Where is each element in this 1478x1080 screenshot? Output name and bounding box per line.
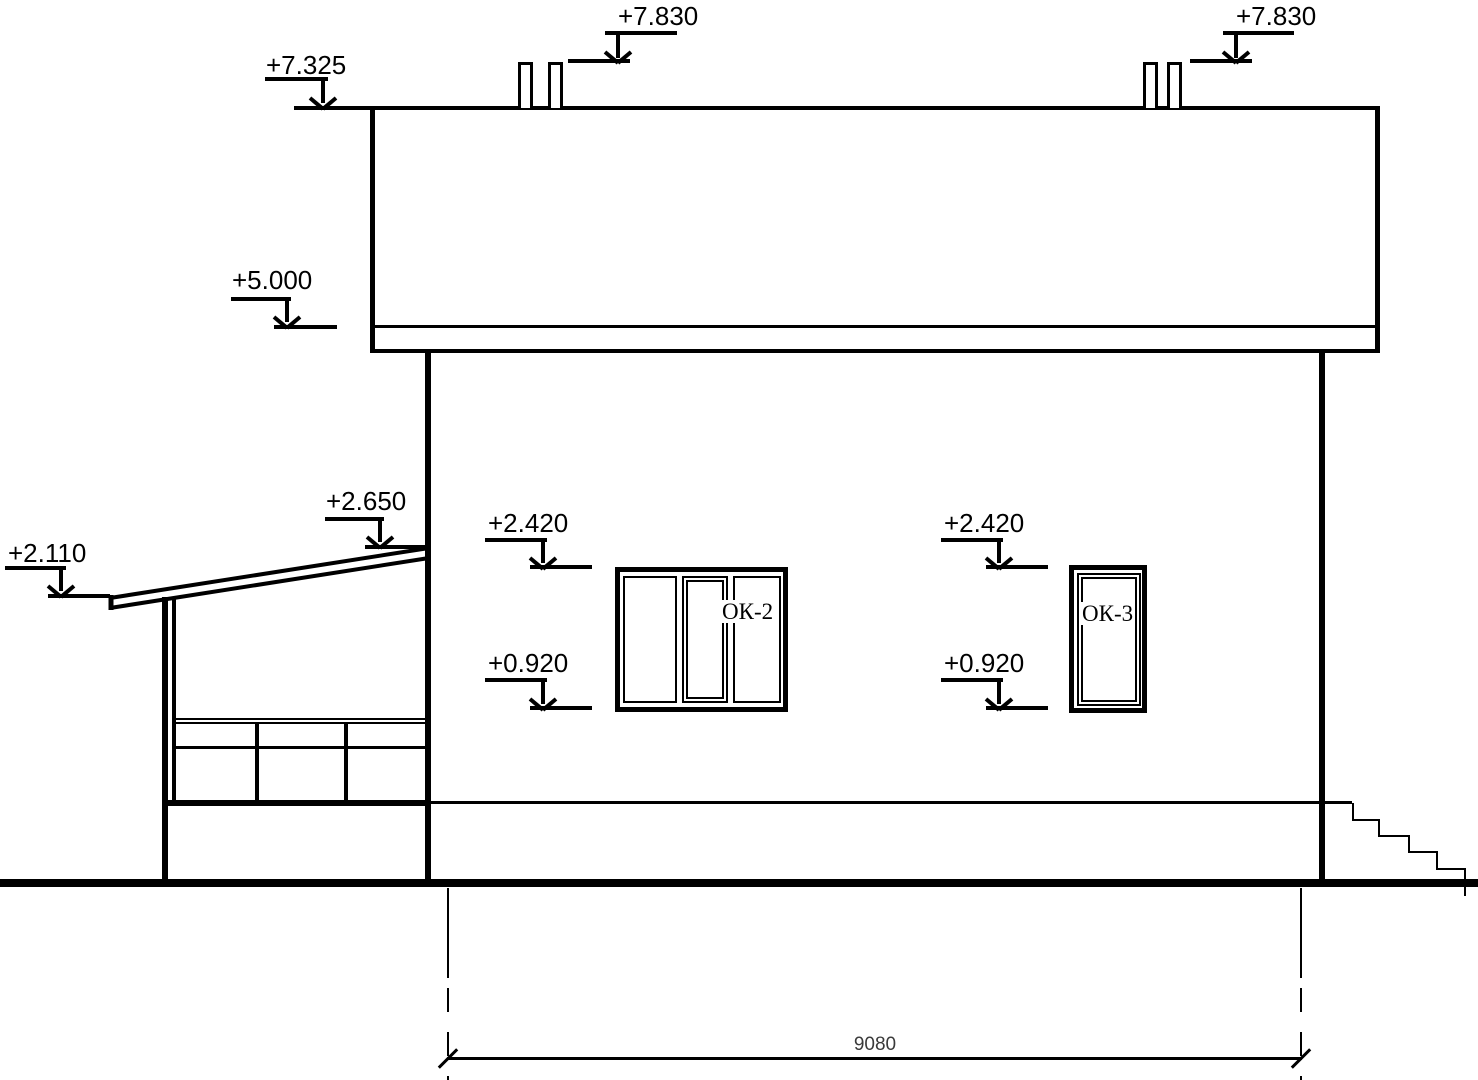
level-line (365, 545, 427, 549)
down-arrow-icon (986, 552, 1012, 566)
down-arrow-icon (530, 693, 556, 707)
down-arrow-icon (367, 531, 393, 545)
down-arrow-icon (1223, 46, 1249, 60)
leader-shelf (485, 678, 547, 682)
plinth-line (431, 801, 1352, 804)
wall-right-edge (1319, 352, 1325, 879)
down-arrow-icon (605, 46, 631, 60)
elevation-value: +2.420 (488, 510, 568, 536)
dimension-value: 9080 (820, 1035, 930, 1054)
level-line (1190, 59, 1252, 63)
elevation-value: +0.920 (488, 650, 568, 676)
window-ok3-sash-inner (1081, 577, 1137, 702)
railing-top-rail-2 (176, 722, 425, 724)
leader-shelf (5, 566, 66, 570)
elevation-value: +2.420 (944, 510, 1024, 536)
window-ok2-label: ОК-2 (721, 600, 774, 623)
window-ok3-label: ОК-3 (1081, 602, 1134, 625)
stair-tread (1408, 851, 1438, 853)
dimension-line (447, 1057, 1302, 1060)
ground-line (0, 879, 1478, 887)
railing-top-rail (176, 718, 425, 720)
roof-fascia-line (375, 325, 1375, 328)
level-line (568, 59, 630, 63)
chimney-vent (1167, 62, 1182, 108)
elevation-value: +0.920 (944, 650, 1024, 676)
railing-bottom-beam (164, 800, 431, 806)
roof-parapet (370, 106, 1380, 353)
window-ok2-pane-left (623, 576, 677, 703)
down-arrow-icon (274, 311, 300, 325)
leader-shelf (325, 517, 384, 521)
level-line (294, 106, 374, 110)
chimney-vent (548, 62, 563, 108)
level-line (530, 706, 592, 710)
stair-tread (1378, 835, 1410, 837)
down-arrow-icon (530, 552, 556, 566)
extension-line-right (1300, 888, 1302, 978)
level-line (986, 706, 1048, 710)
elevation-value: +7.325 (266, 52, 346, 78)
leader-shelf (941, 538, 1003, 542)
level-line (986, 565, 1048, 569)
elevation-value: +5.000 (232, 267, 312, 293)
down-arrow-icon (986, 693, 1012, 707)
stair-tread (1352, 819, 1380, 821)
level-line (48, 594, 110, 598)
down-arrow-icon (310, 92, 336, 106)
level-line (274, 325, 337, 329)
leader-shelf (941, 678, 1003, 682)
down-arrow-icon (48, 580, 74, 594)
porch-post-outer (162, 597, 168, 879)
window-ok2-pane-middle-sash (686, 580, 724, 699)
railing-mid-rail (176, 746, 425, 749)
extension-line-left-dashed (447, 978, 449, 1080)
elevation-value: +2.650 (326, 488, 406, 514)
leader-shelf (231, 297, 291, 301)
extension-line-left (447, 888, 449, 978)
elevation-value: +7.830 (618, 3, 698, 29)
elevation-drawing: ОК-2 ОК-3 +7.830 +7.830 (0, 0, 1478, 1080)
level-line (530, 565, 592, 569)
railing-divider (255, 722, 259, 800)
elevation-value: +7.830 (1236, 3, 1316, 29)
leader-shelf (265, 77, 328, 81)
window-ok2-pane-right (733, 576, 781, 703)
railing-divider (344, 722, 348, 800)
chimney-vent (1143, 62, 1158, 108)
elevation-value: +2.110 (8, 540, 86, 566)
extension-line-right-dashed (1300, 978, 1302, 1080)
leader-shelf (485, 538, 547, 542)
stair-tread (1436, 868, 1466, 870)
chimney-vent (518, 62, 533, 108)
porch-post-inner (172, 599, 176, 802)
